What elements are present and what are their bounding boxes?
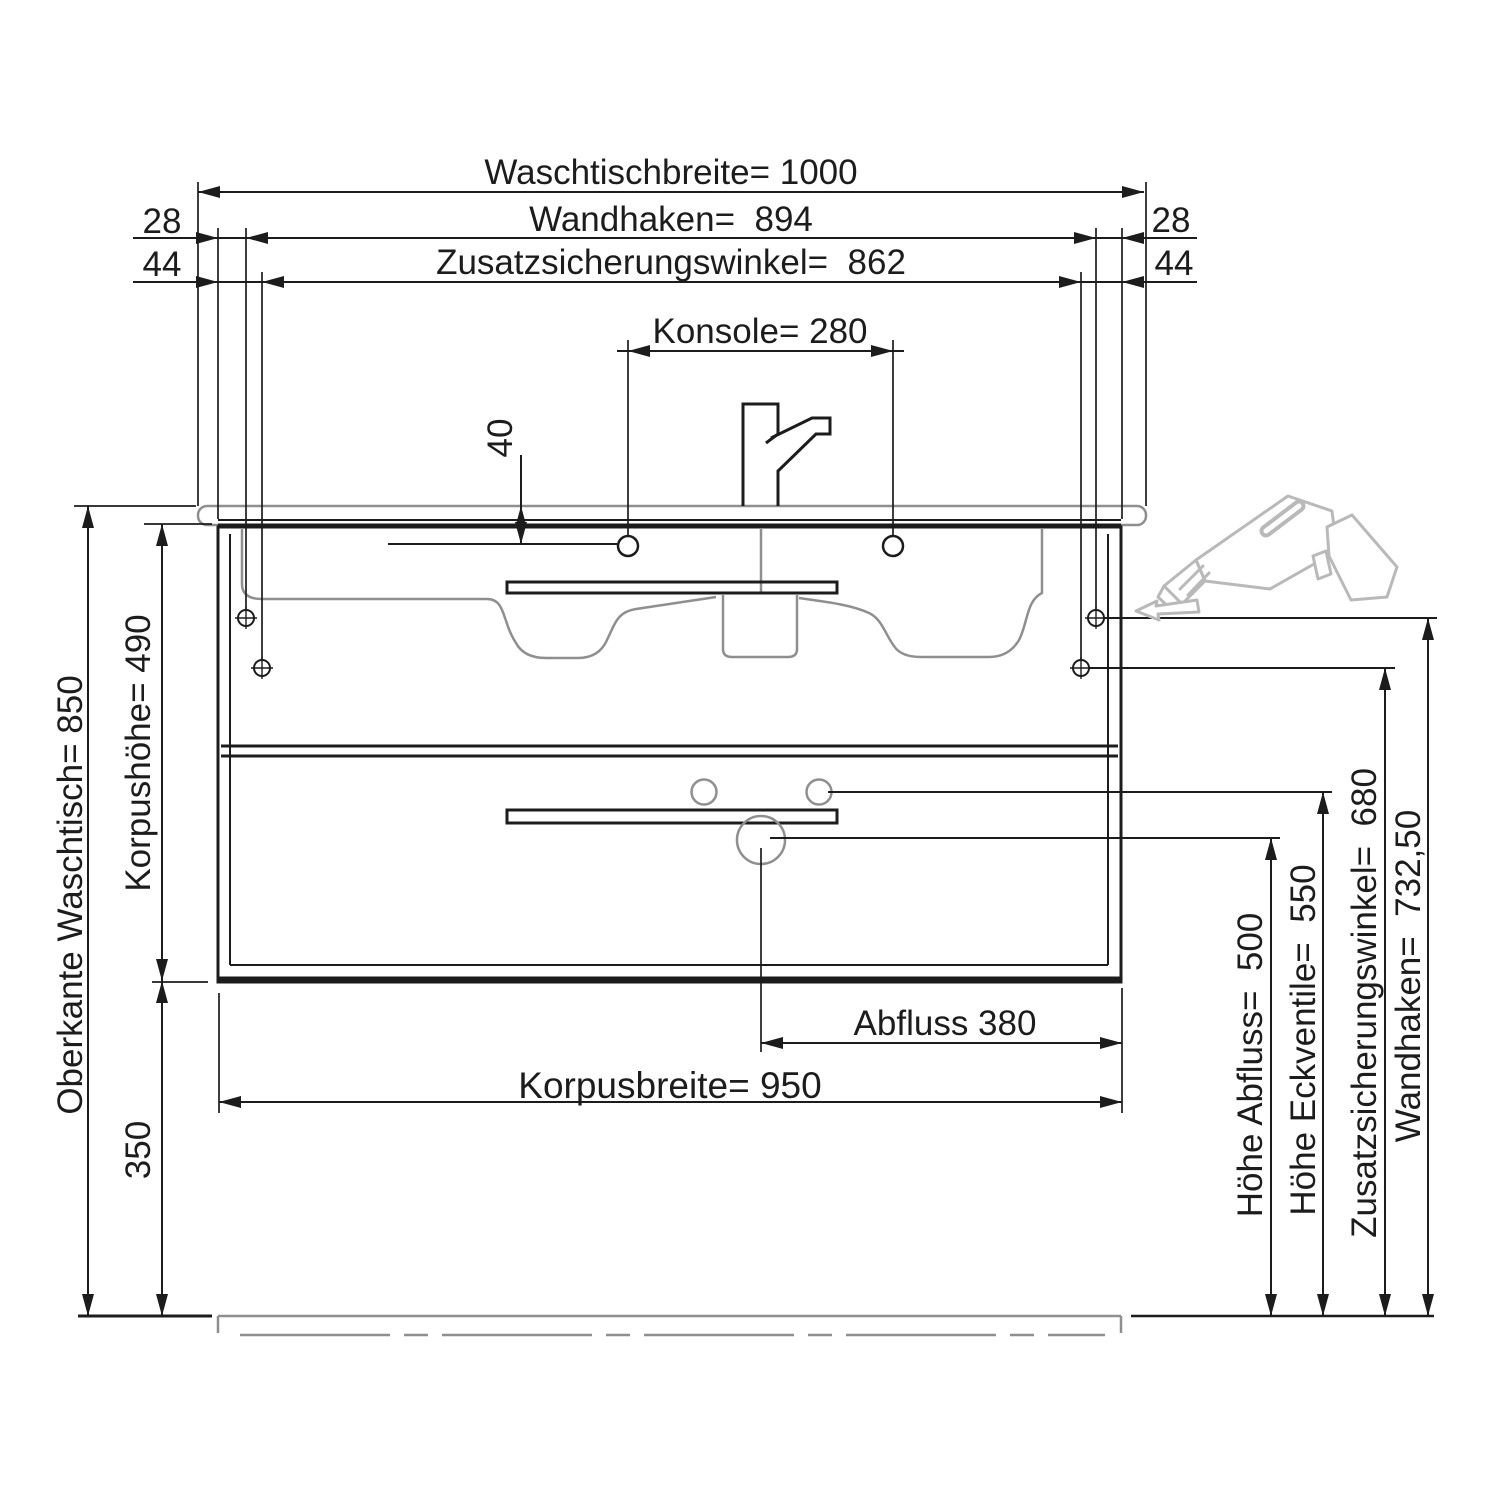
wandhaken-top-label: Wandhaken= 894 [529, 200, 813, 239]
oberkante-waschtisch-label: Oberkante Waschtisch= 850 [51, 675, 90, 1114]
corner-valve-left [692, 780, 717, 805]
cabinet-body [218, 527, 1121, 982]
offset-28-right-label: 28 [1152, 201, 1191, 240]
top-drawer-handle [507, 582, 837, 593]
right-dimension-lines [770, 618, 1437, 1316]
fixing-points [235, 607, 1107, 679]
floor-line [218, 1316, 1121, 1335]
offset-28-left-label: 28 [143, 202, 182, 241]
zusatzsicherungswinkel-top-label: Zusatzsicherungswinkel= 862 [436, 243, 906, 282]
hoehe-eckventile-label: Höhe Eckventile= 550 [1284, 864, 1323, 1215]
faucet-icon [743, 404, 830, 506]
siphon-cup [723, 595, 797, 657]
korpusbreite-label: Korpusbreite= 950 [518, 1065, 821, 1106]
offset-44-left-label: 44 [143, 245, 182, 284]
waschtischbreite-label: Waschtischbreite= 1000 [484, 153, 857, 192]
drawing-canvas: Waschtischbreite= 1000 Wandhaken= 894 Zu… [0, 0, 1500, 1500]
vanity-technical-drawing: Waschtischbreite= 1000 Wandhaken= 894 Zu… [0, 0, 1500, 1500]
bottom-drawer-handle [507, 810, 837, 823]
korpushoehe-label: Korpushöhe= 490 [119, 614, 158, 891]
corner-valve-right [807, 780, 832, 805]
faucet-hole-offset-label: 40 [481, 419, 520, 458]
drawer-handles [507, 582, 837, 823]
wandhaken-point-right [1085, 607, 1107, 629]
wandhaken-point-left [235, 607, 257, 629]
zusatzwinkel-point-left [251, 657, 273, 679]
drill-grip [1327, 515, 1397, 600]
offset-44-right-label: 44 [1155, 244, 1194, 283]
drill-trigger [1313, 551, 1331, 579]
zusatzsicherungswinkel-right-label: Zusatzsicherungswinkel= 680 [1345, 768, 1384, 1238]
extension-lines [74, 182, 1146, 1113]
abfluss-380-label: Abfluss 380 [854, 1004, 1037, 1043]
washbasin-top [198, 506, 1146, 526]
wandhaken-right-label: Wandhaken= 732,50 [1389, 810, 1428, 1142]
konsole-label: Konsole= 280 [652, 312, 867, 351]
bodenabstand-350-label: 350 [119, 1121, 158, 1179]
hoehe-abfluss-label: Höhe Abfluss= 500 [1231, 913, 1270, 1218]
drill-icon [1158, 496, 1397, 611]
dimension-labels: Waschtischbreite= 1000 Wandhaken= 894 Zu… [51, 153, 1428, 1238]
